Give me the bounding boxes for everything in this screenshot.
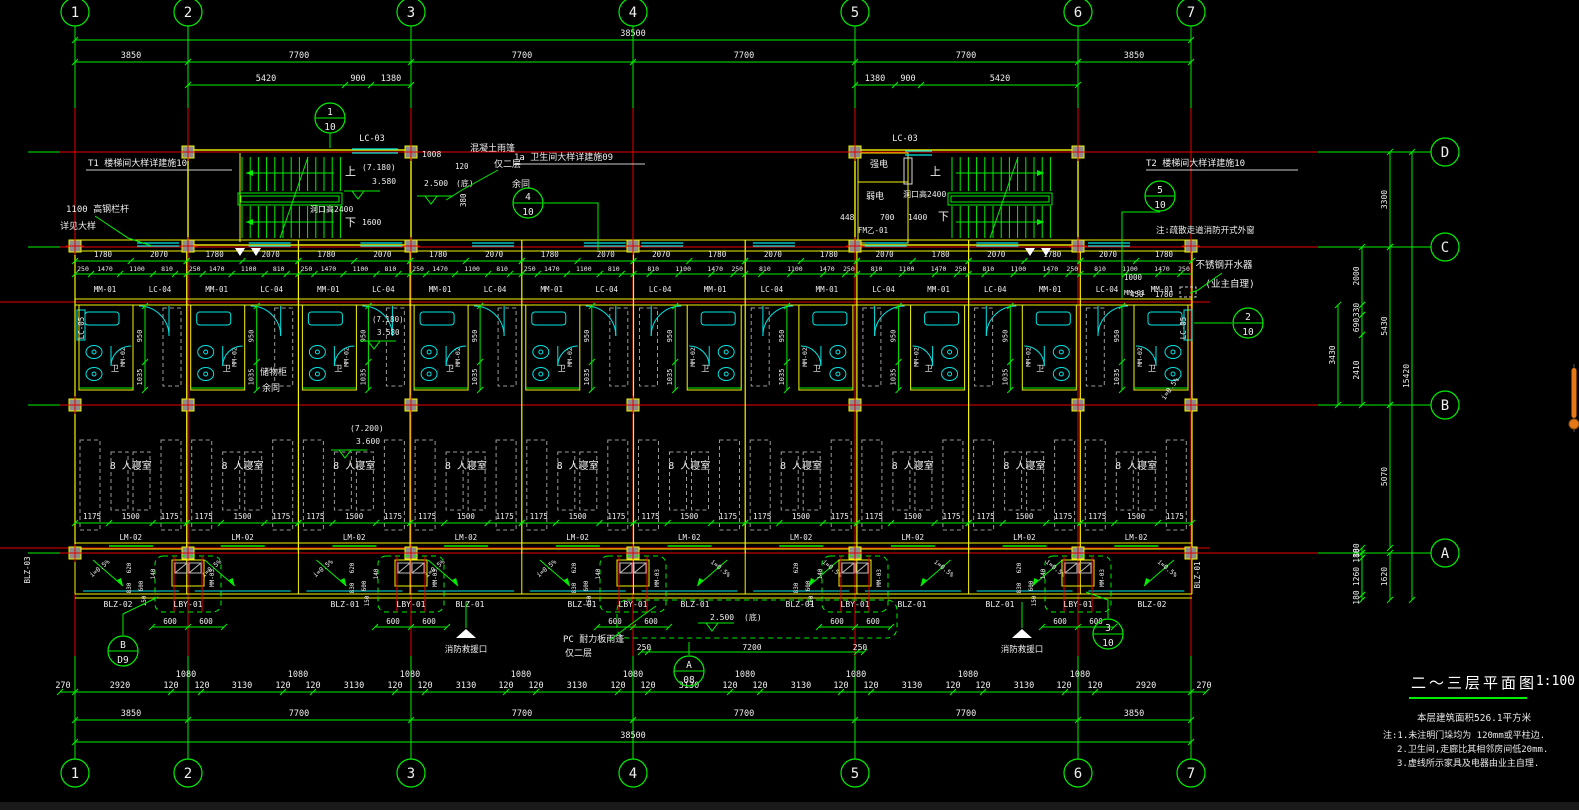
line <box>634 563 646 573</box>
dim-label: 1175 <box>1088 512 1106 521</box>
dim-label: 1780 <box>820 250 839 259</box>
grid-bubble-top-label: 1 <box>71 5 79 21</box>
dim-label-v: 830 <box>126 582 133 593</box>
washbasin-counter <box>701 312 735 325</box>
dim-label-v: 830 <box>793 582 800 593</box>
annotation-text: LC-03 <box>892 134 918 144</box>
cad-drawing-canvas: 3850038507700770077007700385054209001380… <box>0 0 1579 810</box>
toilet-drain <box>92 350 96 354</box>
dim-label: 3130 <box>232 681 252 691</box>
room-label: 8 人寝室 <box>780 459 822 472</box>
drawing-title: 二～三层平面图 <box>1411 672 1537 693</box>
lby-label: LBY-01 <box>174 600 203 609</box>
dim-label-v: 950 <box>471 330 479 343</box>
bath-door-tag: MM-02 <box>1136 347 1144 367</box>
annotation-text: 不锈钢开水器 <box>1195 259 1253 271</box>
balcony-door-tag: LM-02 <box>678 533 701 542</box>
annotation-text: 下 <box>345 216 356 229</box>
dim-label: 120 <box>1056 681 1071 691</box>
detail-bubble-number: B <box>120 640 126 651</box>
dim-label: 810 <box>759 265 771 273</box>
title-block: 二～三层平面图 1:100 本层建筑面积526.1平方米 注:1.未注明门垛均为… <box>1383 668 1577 694</box>
annotation-text: 700 <box>880 213 895 222</box>
storage-cabinet <box>751 308 769 386</box>
dim-label-v: 150 <box>1031 595 1038 606</box>
storage-cabinet <box>610 308 628 386</box>
dim-label: 120 <box>387 681 402 691</box>
dim-label: 1470 <box>97 265 113 273</box>
window-tag: MM-03 <box>209 569 216 587</box>
toilet-drain <box>204 372 208 376</box>
dim-label: 2920 <box>1136 681 1156 691</box>
section-mark <box>1025 248 1035 256</box>
toilet-drain <box>92 372 96 376</box>
dim-label-v: 1035 <box>136 369 144 386</box>
dim-label: 1175 <box>719 512 737 521</box>
stair-break-line <box>990 157 1018 238</box>
leader-line <box>95 216 152 246</box>
toilet-drain <box>836 350 840 354</box>
dim-label: 120 <box>975 681 990 691</box>
slope-label: i=0.5% <box>535 558 558 579</box>
dim-label: 3130 <box>567 681 587 691</box>
line <box>189 563 201 573</box>
dim-label: 5420 <box>256 74 276 84</box>
dim-label: 1175 <box>607 512 625 521</box>
toilet-drain <box>427 372 431 376</box>
balcony-door-tag: LM-02 <box>120 533 143 542</box>
stair-arrowhead <box>246 170 253 176</box>
dim-label: 1380 <box>381 74 401 84</box>
washbasin-counter <box>813 312 847 325</box>
annotation-text: i=0.5% <box>1160 376 1182 402</box>
dim-label: 7700 <box>512 51 532 61</box>
annotation-text: 洞口高2400 <box>903 189 946 199</box>
dim-label: 1100 <box>464 265 480 273</box>
washbasin-counter <box>1148 312 1182 325</box>
grid-bubble-bottom-label: 1 <box>71 766 79 782</box>
balcony-zone-label: BLZ-01 <box>456 600 485 609</box>
dim-label: 3130 <box>456 681 476 691</box>
annotation-text: 380 <box>459 193 468 207</box>
dim-label: 120 <box>163 681 178 691</box>
bathroom-label: 卫 <box>446 364 454 373</box>
balcony-door-tag: LM-02 <box>455 533 478 542</box>
dim-label: 120 <box>194 681 209 691</box>
door-tag: MM-01 <box>429 285 452 294</box>
dim-label-v: 1035 <box>583 369 591 386</box>
grid-bubble-top-label: 4 <box>629 5 637 21</box>
dim-label: 120 <box>722 681 737 691</box>
section-mark <box>235 248 245 256</box>
window-tag: LC-04 <box>372 285 395 294</box>
dim-label-v: 5070 <box>1380 467 1389 486</box>
note-line: 3.虚线所示家具及电器由业主自理. <box>1397 756 1539 769</box>
dim-label-v: 3430 <box>1328 345 1337 364</box>
bath-door-tag: MM-02 <box>1024 347 1032 367</box>
annotation-text: 2.500 <box>710 613 734 622</box>
room-unit: 卫MM-0295010351780207025014701100810MM-01… <box>184 243 302 591</box>
annotation-text: 1780 <box>1155 290 1174 299</box>
dim-label: 5420 <box>990 74 1010 84</box>
storage-cabinet <box>975 308 993 386</box>
dim-label: 250 <box>1066 265 1078 273</box>
dim-label-v: 5430 <box>1380 316 1389 335</box>
dim-label: 2070 <box>150 250 169 259</box>
door-tag: MM-01 <box>927 285 950 294</box>
annotation-text: 120 <box>455 162 469 171</box>
dim-label: 120 <box>833 681 848 691</box>
toilet-fixture <box>198 368 214 381</box>
dim-label: 810 <box>273 265 285 273</box>
dim-label-v: 600 <box>1028 580 1035 591</box>
dim-label-v: 140 <box>595 568 602 579</box>
dim-label: 3130 <box>344 681 364 691</box>
dim-label: 1080 <box>623 670 643 680</box>
dim-label: 120 <box>1087 681 1102 691</box>
dim-label-v: 620 <box>571 562 578 573</box>
dim-label: 1470 <box>1042 265 1058 273</box>
bath-door-tag: MM-02 <box>689 347 697 367</box>
dim-label: 1380 <box>865 74 885 84</box>
dim-label: 810 <box>161 265 173 273</box>
dim-label: 250 <box>843 265 855 273</box>
washbasin-counter <box>1036 312 1070 325</box>
rescue-opening-label: 消防救援口 <box>1001 644 1044 655</box>
dim-label-v: 690 <box>1352 318 1361 333</box>
dim-label: 1780 <box>94 250 113 259</box>
balcony-zone-label: BLZ-02 <box>104 600 133 609</box>
toilet-drain <box>204 350 208 354</box>
annotation-text: (底) <box>456 178 474 188</box>
stair-right <box>948 157 1052 238</box>
bath-door-tag: MM-02 <box>566 347 574 367</box>
toilet-drain <box>315 350 319 354</box>
toilet-drain <box>1059 372 1063 376</box>
dim-label-v: 950 <box>248 330 256 343</box>
dim-label: 1500 <box>904 512 923 521</box>
toilet-fixture <box>1165 346 1181 359</box>
detail-bubble-number: 4 <box>525 192 531 203</box>
detail-bubble-number: 5 <box>1157 185 1163 196</box>
toilet-fixture <box>309 368 325 381</box>
dim-label-v: 600 <box>138 580 145 591</box>
bathroom-label: 卫 <box>1148 364 1156 373</box>
storage-cabinet <box>863 308 881 386</box>
balcony-door-tag: LM-02 <box>231 533 254 542</box>
detail-bubble-number: 3 <box>1105 623 1111 634</box>
detail-bubble-number: 2 <box>1245 312 1251 323</box>
scrollbar-thumb[interactable] <box>1572 368 1577 418</box>
dim-label: 1500 <box>457 512 476 521</box>
level-symbol <box>352 191 364 199</box>
toilet-fixture <box>830 346 846 359</box>
stair-enclosure <box>855 150 1078 245</box>
dim-label-v: 2000 <box>1352 266 1361 285</box>
door-tag: MM-01 <box>317 285 340 294</box>
bath-door-tag: MM-02 <box>231 347 239 367</box>
stair-arrowhead <box>246 219 253 225</box>
dim-label-v: 600 <box>805 580 812 591</box>
annotation-text: 弱电 <box>866 190 884 202</box>
toilet-fixture <box>309 346 325 359</box>
dim-label: 1080 <box>511 670 531 680</box>
toilet-fixture <box>718 368 734 381</box>
dim-label-v: 1260 <box>1352 567 1361 586</box>
washbasin-counter <box>85 312 119 325</box>
dim-label: 2920 <box>110 681 130 691</box>
lby-label: LBY-01 <box>397 600 426 609</box>
washbasin-counter <box>308 312 342 325</box>
dim-label: 1080 <box>958 670 978 680</box>
dim-label: 120 <box>275 681 290 691</box>
grid-bubble-right-label: C <box>1441 240 1449 256</box>
window-tag: LC-04 <box>260 285 283 294</box>
dim-label: 270 <box>55 681 70 691</box>
room-unit: 卫MM-0295010351780207025014701100810MM-01… <box>519 243 637 591</box>
toilet-fixture <box>942 346 958 359</box>
room-unit: 卫MM-0295010351780207025014701100810MM-01… <box>72 243 190 591</box>
window-tag: LC-04 <box>872 285 895 294</box>
line <box>620 563 632 573</box>
dim-label: 1100 <box>787 265 803 273</box>
line <box>842 563 854 573</box>
balcony-zone-label: BLZ-01 <box>986 600 1015 609</box>
annotation-text: 洞口高2400 <box>310 204 353 214</box>
bathroom-label: 卫 <box>813 364 821 373</box>
window-tag: LC-04 <box>984 285 1007 294</box>
window-tag: MM-03 <box>1099 569 1106 587</box>
annotation-text: 7200 <box>742 643 761 652</box>
dim-label-v: 140 <box>817 568 824 579</box>
dim-label: 1470 <box>931 265 947 273</box>
dim-label: 250 <box>189 265 201 273</box>
window-tag: MM-03 <box>654 569 661 587</box>
balcony-zone-label: BLZ-01 <box>331 600 360 609</box>
dim-label: 7700 <box>512 709 532 719</box>
window-tag: LC-04 <box>149 285 172 294</box>
scrollbar-thumb-ball[interactable] <box>1569 419 1579 429</box>
annotation-text: (底) <box>744 612 762 622</box>
stair-landing <box>948 193 1052 205</box>
storage-cabinet <box>640 308 658 386</box>
window-tag: LC-04 <box>649 285 672 294</box>
annotation-text: 250 <box>637 643 652 652</box>
dim-label: 1175 <box>384 512 402 521</box>
rescue-triangle <box>1012 629 1032 638</box>
stair-break-line <box>280 157 308 238</box>
toilet-drain <box>1171 372 1175 376</box>
level-symbol <box>339 450 351 458</box>
dim-label: 1175 <box>942 512 960 521</box>
toilet-fixture <box>1053 346 1069 359</box>
dim-label: 1100 <box>353 265 369 273</box>
annotation-text: 1000 <box>1124 273 1143 282</box>
grid-bubble-right-label: D <box>1441 145 1449 161</box>
dim-label-v: 830 <box>571 582 578 593</box>
balcony-zone-label: BLZ-01 <box>681 600 710 609</box>
dim-label: 1780 <box>317 250 336 259</box>
door-tag: MM-01 <box>94 285 117 294</box>
dim-label: 120 <box>752 681 767 691</box>
dim-label: 600 <box>163 617 177 626</box>
grid-bubble-bottom-label: 5 <box>851 766 859 782</box>
dim-label-v: 950 <box>1001 330 1009 343</box>
dim-label-v: 1035 <box>1113 369 1121 386</box>
status-bar <box>0 802 1579 810</box>
annotation-text: 3.580 <box>372 177 396 186</box>
rescue-opening-label: 消防救援口 <box>445 644 488 655</box>
dim-label-v: 830 <box>1016 582 1023 593</box>
dim-label: 1500 <box>345 512 364 521</box>
annotation-text: 仅二层 <box>565 647 592 659</box>
section-mark <box>251 248 261 256</box>
dim-label-v: 1035 <box>1001 369 1009 386</box>
dim-label-v: 140 <box>373 568 380 579</box>
dim-label: 250 <box>412 265 424 273</box>
level-symbol <box>425 196 437 204</box>
annotation-text: 强电 <box>870 158 888 170</box>
bathroom-label: 卫 <box>111 364 119 373</box>
detail-bubble-sheet: 10 <box>1102 638 1114 649</box>
slope-label: i=0.5% <box>312 558 335 579</box>
balcony-zone-label: BLZ-01 <box>568 600 597 609</box>
toilet-drain <box>724 350 728 354</box>
dim-label-v: 2410 <box>1352 360 1361 379</box>
grid-bubble-bottom-label: 2 <box>184 766 192 782</box>
bathroom-label: 卫 <box>925 364 933 373</box>
window-tag: LC-04 <box>1096 285 1119 294</box>
lby-label: LBY-01 <box>1064 600 1093 609</box>
dim-label: 1500 <box>233 512 252 521</box>
annotation-text: FM乙-01 <box>858 226 888 235</box>
detail-bubble-sheet: 10 <box>324 122 336 133</box>
dim-label-v: 950 <box>359 330 367 343</box>
line <box>1065 563 1077 573</box>
scrollbar <box>1569 364 1579 432</box>
dim-label-v: 600 <box>583 580 590 591</box>
dim-label: 1080 <box>400 670 420 680</box>
dim-label: 7700 <box>734 709 754 719</box>
leader-line <box>446 170 498 200</box>
dim-label: 2070 <box>262 250 281 259</box>
dim-label-v: 15420 <box>1402 364 1411 388</box>
dim-label: 1175 <box>306 512 324 521</box>
balcony-zone-label: BLZ-02 <box>1138 600 1167 609</box>
dim-label: 1100 <box>1010 265 1026 273</box>
dim-label-v: 620 <box>1016 562 1023 573</box>
toilet-drain <box>836 372 840 376</box>
room-label: 8 人寝室 <box>892 459 934 472</box>
dim-label: 120 <box>640 681 655 691</box>
dim-label: 1470 <box>209 265 225 273</box>
dim-label: 1175 <box>418 512 436 521</box>
dim-label: 3850 <box>121 51 141 61</box>
annotation-text: 下 <box>938 210 949 223</box>
dim-label-v: 950 <box>583 330 591 343</box>
bath-door-tag: MM-02 <box>913 347 921 367</box>
dim-label-v: 620 <box>126 562 133 573</box>
dim-label: 1780 <box>708 250 727 259</box>
storage-cabinet <box>163 308 181 386</box>
level-symbol <box>368 341 380 349</box>
dim-label: 1500 <box>792 512 811 521</box>
annotation-text: MM-01 <box>1124 289 1145 297</box>
room-label: 8 人寝室 <box>445 459 487 472</box>
room-label: 8 人寝室 <box>557 459 599 472</box>
dim-label: 1500 <box>122 512 141 521</box>
dim-label: 810 <box>1094 265 1106 273</box>
annotation-text: T2 楼梯间大样详建施10 <box>1146 157 1245 169</box>
bathroom-label: 卫 <box>223 364 231 373</box>
dim-label: 1175 <box>496 512 514 521</box>
bath-door-tag: MM-02 <box>119 347 127 367</box>
dim-label: 1175 <box>977 512 995 521</box>
dim-label: 1175 <box>530 512 548 521</box>
grid-bubble-bottom-label: 6 <box>1074 766 1082 782</box>
annotation-text: BLZ-01 <box>1193 561 1202 588</box>
balcony-door-tag: LM-02 <box>566 533 589 542</box>
cad-application-window: 3850038507700770077007700385054209001380… <box>0 0 1579 810</box>
dim-label: 3130 <box>902 681 922 691</box>
floor-area-note: 本层建筑面积526.1平方米 <box>1417 710 1531 724</box>
dim-label: 1175 <box>195 512 213 521</box>
dim-label-v: 620 <box>793 562 800 573</box>
dim-label: 38500 <box>620 731 646 741</box>
toilet-fixture <box>942 368 958 381</box>
dim-label: 810 <box>982 265 994 273</box>
dim-label: 2070 <box>597 250 616 259</box>
dim-label: 7700 <box>289 51 309 61</box>
door-tag: MM-01 <box>816 285 839 294</box>
bathroom-label: 卫 <box>334 364 342 373</box>
toilet-fixture <box>830 368 846 381</box>
dim-label: 3850 <box>1124 709 1144 719</box>
dim-label: 3130 <box>791 681 811 691</box>
annotation-text: 3.580 <box>377 328 400 337</box>
dim-label: 600 <box>644 617 658 626</box>
dim-label: 1500 <box>680 512 699 521</box>
dim-label: 1780 <box>429 250 448 259</box>
annotation-text: (7.180) <box>372 315 404 324</box>
dim-label: 1470 <box>1154 265 1170 273</box>
grid-bubble-bottom-label: 4 <box>629 766 637 782</box>
door-tag: MM-01 <box>205 285 228 294</box>
dim-label: 600 <box>422 617 436 626</box>
axis-lines <box>0 26 1431 758</box>
annotation-text: BLZ-03 <box>23 556 32 583</box>
dim-label: 1100 <box>675 265 691 273</box>
annotation-text: 详见大样 <box>60 220 96 232</box>
dim-label: 7700 <box>289 709 309 719</box>
room-unit: 卫MM-0295010351780207025014701100810MM-01… <box>407 243 525 591</box>
dim-label: 7700 <box>956 51 976 61</box>
lby-label: LBY-01 <box>841 600 870 609</box>
dim-label: 1100 <box>1122 265 1138 273</box>
dim-label: 120 <box>305 681 320 691</box>
dim-label: 3850 <box>121 709 141 719</box>
dim-label: 810 <box>647 265 659 273</box>
annotation-text: 注:疏散走道消防开式外窗 <box>1156 225 1255 236</box>
toilet-fixture <box>198 346 214 359</box>
window-tag: LC-04 <box>761 285 784 294</box>
line <box>412 563 424 573</box>
stair-left <box>238 157 342 238</box>
door-tag: MM-01 <box>704 285 727 294</box>
dim-label-v: 3300 <box>1380 190 1389 209</box>
dim-label: 250 <box>524 265 536 273</box>
dim-label: 1470 <box>707 265 723 273</box>
